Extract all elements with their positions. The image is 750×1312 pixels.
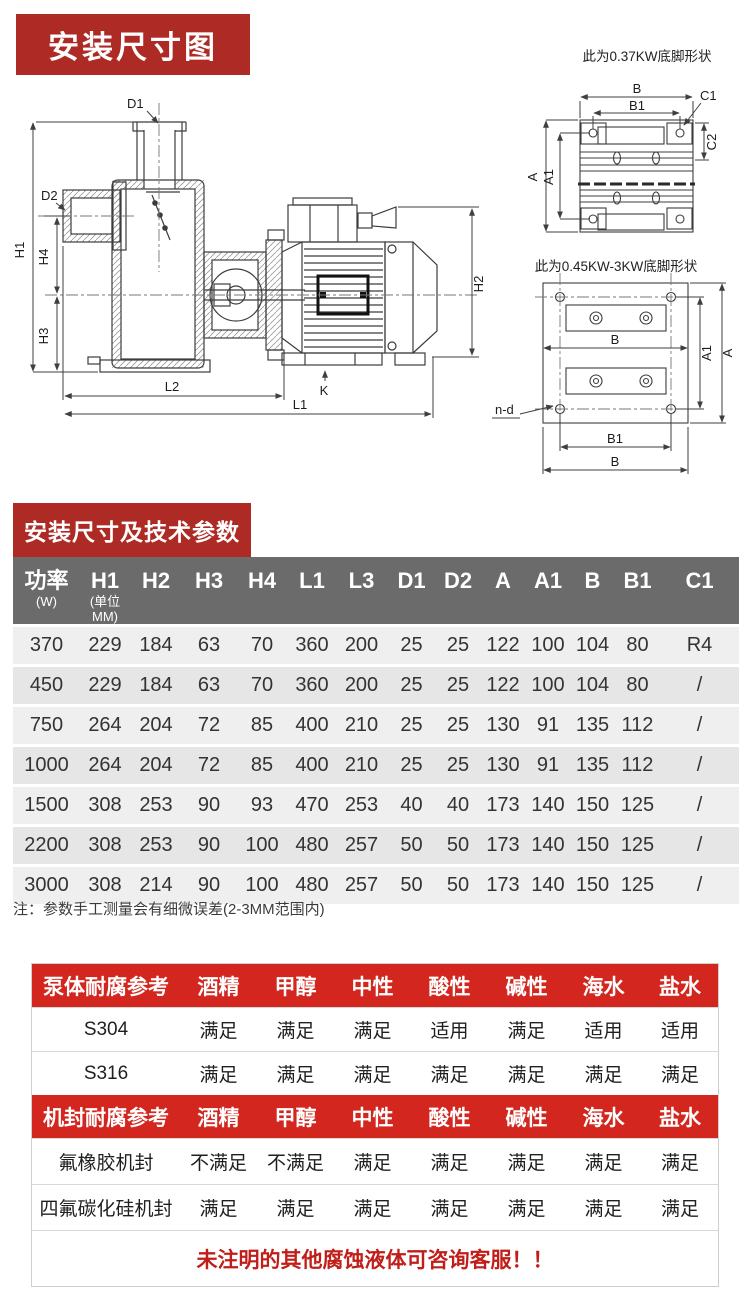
cell: 25 [436,746,480,786]
dim-label-h4: H4 [36,249,51,266]
cell: 70 [236,626,288,666]
cell: / [660,706,739,746]
header-cell: 酒精 [180,964,257,1008]
cell: 不满足 [257,1139,334,1185]
pump-cross-section: D1 D2 H1 H4 H3 H2 L2 L1 K [12,96,486,418]
dim-label-a: A [525,172,540,181]
cell: 25 [436,666,480,706]
cell: 40 [436,786,480,826]
header-cell: 中性 [334,964,411,1008]
cell: 70 [236,666,288,706]
cell: 满足 [411,1139,488,1185]
cell: 140 [526,826,570,866]
cell: 370 [13,626,80,666]
dim-label-l2: L2 [165,379,179,394]
cell: 140 [526,866,570,906]
dim-label-d2: D2 [41,188,58,203]
cell: 93 [236,786,288,826]
cell: 173 [480,866,526,906]
cell: 91 [526,706,570,746]
cell: 满足 [411,1052,488,1096]
corrosion-row-fkm: 氟橡胶机封不满足不满足满足满足满足满足满足 [32,1139,718,1185]
header-cell: 甲醇 [257,1095,334,1139]
cell: 470 [288,786,336,826]
cell: 210 [336,746,387,786]
cell: 满足 [565,1139,642,1185]
col-header-l3: L3 [336,557,387,626]
cell: 122 [480,626,526,666]
dim-label-c2: C2 [704,134,719,151]
measurement-note: 注：参数手工测量会有细微误差(2-3MM范围内) [13,898,325,919]
cell: 200 [336,666,387,706]
params-row-1500: 150030825390934702534040173140150125/ [13,786,739,826]
cell: 229 [80,666,130,706]
cell: / [660,786,739,826]
cell: 173 [480,826,526,866]
cell: 满足 [334,1139,411,1185]
cell: 360 [288,666,336,706]
cell: 450 [13,666,80,706]
cell: 135 [570,746,615,786]
col-header-h1: H1(单位MM) [80,557,130,626]
col-header-h4: H4 [236,557,288,626]
corrosion-row-ptfe-sic: 四氟碳化硅机封满足满足满足满足满足满足满足 [32,1185,718,1231]
params-row-370: 3702291846370360200252512210010480R4 [13,626,739,666]
dim-label-b-mid: B [611,332,620,347]
cell: 750 [13,706,80,746]
section-title-params: 安装尺寸及技术参数 [13,503,251,557]
cell: 90 [182,826,236,866]
params-header-row: 功率(W) H1(单位MM) H2 H3 H4 L1 L3 D1 D2 A A1… [13,557,739,626]
cell: 满足 [257,1008,334,1052]
cell: 满足 [257,1185,334,1231]
foot-diagram-037kw-title: 此为0.37KW底脚形状 [582,49,712,64]
cell: 253 [130,826,182,866]
cell: 85 [236,706,288,746]
cell: 184 [130,626,182,666]
cell: / [660,866,739,906]
header-cell: 酸性 [411,964,488,1008]
corrosion-header-pump: 泵体耐腐参考酒精甲醇中性酸性碱性海水盐水 [32,964,718,1008]
cell: 150 [570,786,615,826]
cell: 25 [387,626,436,666]
cell: 25 [387,666,436,706]
cell: 210 [336,706,387,746]
cell: 229 [80,626,130,666]
header-cell: 酸性 [411,1095,488,1139]
col-header-a1: A1 [526,557,570,626]
cell: 204 [130,746,182,786]
cell: 135 [570,706,615,746]
corrosion-table-container: 泵体耐腐参考酒精甲醇中性酸性碱性海水盐水 S304满足满足满足适用满足适用适用 … [31,963,719,1287]
header-cell: 泵体耐腐参考 [32,964,180,1008]
cell: 80 [615,666,660,706]
cell: 满足 [565,1185,642,1231]
corrosion-table: 泵体耐腐参考酒精甲醇中性酸性碱性海水盐水 S304满足满足满足适用满足适用适用 … [32,964,718,1286]
corrosion-header-seal: 机封耐腐参考酒精甲醇中性酸性碱性海水盐水 [32,1095,718,1139]
col-header-d1: D1 [387,557,436,626]
cell: 480 [288,826,336,866]
dim-label-b-bottom: B [611,454,620,469]
cell: 25 [436,706,480,746]
corrosion-notice-row: 未注明的其他腐蚀液体可咨询客服！！ [32,1231,718,1287]
contact-service-notice: 未注明的其他腐蚀液体可咨询客服！！ [32,1231,718,1287]
cell: 40 [387,786,436,826]
params-row-2200: 2200308253901004802575050173140150125/ [13,826,739,866]
col-header-h2: H2 [130,557,182,626]
cell: 360 [288,626,336,666]
cell: 122 [480,666,526,706]
cell: 50 [436,826,480,866]
dim-label-a: A [720,348,735,357]
cell: 满足 [257,1052,334,1096]
cell: 125 [615,826,660,866]
col-header-b: B [570,557,615,626]
header-cell: 机封耐腐参考 [32,1095,180,1139]
cell: / [660,666,739,706]
cell: 满足 [488,1139,565,1185]
cell: 满足 [642,1052,718,1096]
cell: 满足 [488,1008,565,1052]
cell: 257 [336,866,387,906]
col-header-l1: L1 [288,557,336,626]
header-cell: 甲醇 [257,964,334,1008]
cell: 满足 [334,1185,411,1231]
cell: 90 [182,786,236,826]
cell: 400 [288,746,336,786]
cell: 63 [182,666,236,706]
dim-label-h2: H2 [471,276,486,293]
cell: 264 [80,706,130,746]
cell: 50 [387,866,436,906]
cell: 72 [182,706,236,746]
cell: 50 [436,866,480,906]
header-cell: 海水 [565,1095,642,1139]
col-header-a: A [480,557,526,626]
cell: 适用 [411,1008,488,1052]
dim-label-a1: A1 [541,169,556,185]
params-row-450: 4502291846370360200252512210010480/ [13,666,739,706]
header-cell: 盐水 [642,1095,718,1139]
cell: 264 [80,746,130,786]
cell: 253 [130,786,182,826]
cell: 204 [130,706,182,746]
corrosion-row-s304: S304满足满足满足适用满足适用适用 [32,1008,718,1052]
cell: 满足 [180,1008,257,1052]
section-title-dimension-diagram: 安装尺寸图 [16,14,250,75]
cell: 140 [526,786,570,826]
cell: 25 [436,626,480,666]
cell: 适用 [642,1008,718,1052]
cell: 100 [526,666,570,706]
dim-label-b: B [633,81,642,96]
cell: 112 [615,706,660,746]
header-cell: 中性 [334,1095,411,1139]
params-row-750: 7502642047285400210252513091135112/ [13,706,739,746]
cell: 150 [570,866,615,906]
cell: / [660,746,739,786]
cell: 25 [387,706,436,746]
cell: 满足 [411,1185,488,1231]
col-header-h3: H3 [182,557,236,626]
header-cell: 碱性 [488,964,565,1008]
dim-label-k: K [320,383,329,398]
cell: 1500 [13,786,80,826]
dim-label-b1: B1 [629,98,645,113]
cell: 四氟碳化硅机封 [32,1185,180,1231]
col-header-c1: C1 [660,557,739,626]
cell: 满足 [642,1185,718,1231]
cell: 130 [480,746,526,786]
cell: 125 [615,866,660,906]
corrosion-row-s316: S316满足满足满足满足满足满足满足 [32,1052,718,1096]
cell: 91 [526,746,570,786]
cell: 150 [570,826,615,866]
cell: 257 [336,826,387,866]
header-cell: 盐水 [642,964,718,1008]
dim-label-a1: A1 [699,345,714,361]
cell: R4 [660,626,739,666]
dim-label-c1: C1 [700,88,717,103]
cell: 173 [480,786,526,826]
col-header-b1: B1 [615,557,660,626]
params-table: 功率(W) H1(单位MM) H2 H3 H4 L1 L3 D1 D2 A A1… [13,557,739,907]
header-cell: 酒精 [180,1095,257,1139]
cell: 2200 [13,826,80,866]
cell: 50 [387,826,436,866]
cell: S304 [32,1008,180,1052]
dim-label-d1: D1 [127,96,144,111]
product-spec-page: { "colors": { "badge_red": "#ae2a24", "t… [0,0,750,1312]
foot-diagram-045-3kw: 此为0.45KW-3KW底脚形状 [492,259,735,474]
foot-diagram-037kw: 此为0.37KW底脚形状 [525,49,719,232]
cell: 适用 [565,1008,642,1052]
cell: 满足 [488,1185,565,1231]
cell: 氟橡胶机封 [32,1139,180,1185]
cell: 112 [615,746,660,786]
cell: 80 [615,626,660,666]
header-cell: 海水 [565,964,642,1008]
cell: 400 [288,706,336,746]
cell: 不满足 [180,1139,257,1185]
cell: 满足 [488,1052,565,1096]
cell: 253 [336,786,387,826]
dim-label-h3: H3 [36,328,51,345]
cell: 100 [236,826,288,866]
col-header-power: 功率(W) [13,557,80,626]
dim-label-h1: H1 [12,242,27,259]
cell: 满足 [334,1008,411,1052]
foot-diagram-045-3kw-title: 此为0.45KW-3KW底脚形状 [535,259,698,274]
cell: S316 [32,1052,180,1096]
header-cell: 碱性 [488,1095,565,1139]
cell: 308 [80,826,130,866]
cell: 63 [182,626,236,666]
dim-label-b1: B1 [607,431,623,446]
cell: 104 [570,666,615,706]
cell: 85 [236,746,288,786]
cell: 72 [182,746,236,786]
cell: 满足 [565,1052,642,1096]
cell: 1000 [13,746,80,786]
cell: 100 [526,626,570,666]
dim-label-l1: L1 [293,397,307,412]
cell: 满足 [334,1052,411,1096]
col-header-d2: D2 [436,557,480,626]
cell: 200 [336,626,387,666]
cell: 满足 [642,1139,718,1185]
cell: 104 [570,626,615,666]
cell: 308 [80,786,130,826]
cell: 25 [387,746,436,786]
cell: 125 [615,786,660,826]
dim-label-n-d: n-d [495,402,514,417]
cell: 满足 [180,1185,257,1231]
params-row-1000: 10002642047285400210252513091135112/ [13,746,739,786]
cell: / [660,826,739,866]
cell: 130 [480,706,526,746]
cell: 满足 [180,1052,257,1096]
cell: 184 [130,666,182,706]
